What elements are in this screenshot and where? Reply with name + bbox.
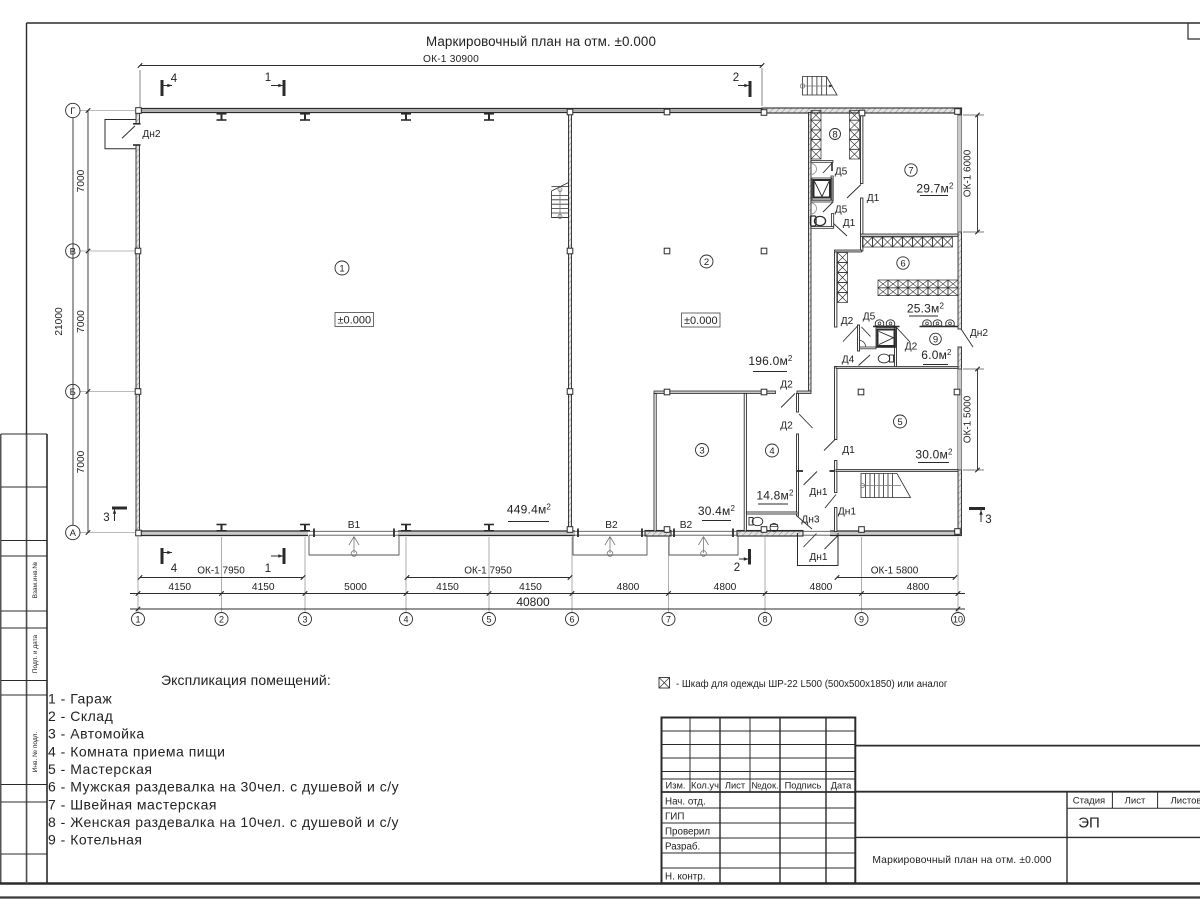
- svg-text:7000: 7000: [76, 450, 87, 473]
- svg-text:Листов: Листов: [1171, 795, 1200, 806]
- svg-text:- Шкаф для одежды ШР-22 L500 (: - Шкаф для одежды ШР-22 L500 (500х500х18…: [676, 679, 948, 690]
- svg-text:7: 7: [908, 165, 913, 176]
- svg-text:5: 5: [897, 417, 902, 428]
- svg-text:Г: Г: [70, 106, 75, 117]
- svg-text:9: 9: [859, 614, 864, 624]
- svg-text:Д5: Д5: [835, 205, 848, 216]
- svg-text:1 - Гараж: 1 - Гараж: [48, 690, 112, 706]
- svg-text:Подп. и дата: Подп. и дата: [32, 634, 39, 673]
- svg-text:30.0м2: 30.0м2: [915, 448, 953, 462]
- svg-text:Д5: Д5: [863, 312, 876, 323]
- svg-text:Д1: Д1: [843, 218, 856, 229]
- svg-text:ОК-1 7950: ОК-1 7950: [464, 566, 512, 577]
- svg-text:2 - Склад: 2 - Склад: [48, 708, 113, 724]
- svg-text:ОК-1 7950: ОК-1 7950: [197, 566, 245, 577]
- svg-text:ГИП: ГИП: [665, 812, 684, 823]
- svg-text:5000: 5000: [344, 582, 367, 593]
- svg-text:7000: 7000: [76, 169, 87, 192]
- svg-text:8: 8: [832, 129, 837, 140]
- svg-text:В2: В2: [680, 520, 693, 531]
- svg-text:1: 1: [339, 263, 344, 274]
- svg-text:№док.: №док.: [751, 781, 778, 791]
- svg-text:±0.000: ±0.000: [684, 315, 718, 327]
- svg-text:Изм.: Изм.: [666, 781, 686, 791]
- svg-text:ОК-1 5800: ОК-1 5800: [871, 566, 919, 577]
- svg-text:Д4: Д4: [842, 355, 855, 366]
- svg-text:6: 6: [569, 614, 574, 624]
- svg-text:Взам.инв.№: Взам.инв.№: [32, 562, 39, 599]
- svg-text:Дн2: Дн2: [142, 129, 161, 140]
- svg-text:Дн2: Дн2: [970, 328, 989, 339]
- svg-text:Подпись: Подпись: [785, 781, 822, 791]
- svg-text:1: 1: [265, 563, 271, 575]
- svg-text:5: 5: [486, 614, 491, 624]
- svg-text:7: 7: [666, 614, 671, 624]
- svg-text:4150: 4150: [519, 582, 542, 593]
- svg-text:Д5: Д5: [835, 167, 848, 178]
- svg-text:Лист: Лист: [725, 781, 746, 791]
- svg-text:Инв. № подл.: Инв. № подл.: [32, 732, 39, 773]
- svg-text:Д2: Д2: [780, 380, 793, 391]
- svg-text:Кол.уч: Кол.уч: [691, 781, 719, 791]
- svg-text:21000: 21000: [54, 307, 65, 336]
- svg-text:1: 1: [265, 72, 271, 84]
- svg-text:4: 4: [403, 614, 408, 624]
- svg-text:196.0м2: 196.0м2: [748, 354, 792, 368]
- svg-text:4: 4: [769, 446, 774, 457]
- svg-text:Н. контр.: Н. контр.: [665, 872, 705, 883]
- svg-text:2: 2: [733, 72, 739, 84]
- svg-text:±0.000: ±0.000: [338, 315, 372, 327]
- svg-text:Дн1: Дн1: [809, 487, 828, 498]
- svg-text:2: 2: [704, 257, 709, 268]
- svg-text:Д2: Д2: [841, 316, 854, 327]
- svg-text:9 - Котельная: 9 - Котельная: [48, 832, 143, 848]
- svg-text:7 - Швейная мастерская: 7 - Швейная мастерская: [48, 796, 217, 812]
- svg-text:ОК-1 30900: ОК-1 30900: [423, 54, 479, 65]
- svg-text:449.4м2: 449.4м2: [507, 503, 551, 517]
- svg-text:29.7м2: 29.7м2: [916, 182, 954, 196]
- svg-text:Нач. отд.: Нач. отд.: [665, 797, 706, 808]
- svg-text:5 - Мастерская: 5 - Мастерская: [48, 761, 152, 777]
- svg-text:4150: 4150: [252, 582, 275, 593]
- svg-text:9: 9: [933, 334, 938, 345]
- svg-text:ОК-1 5000: ОК-1 5000: [963, 395, 974, 443]
- svg-text:8 - Женская раздевалка на 10че: 8 - Женская раздевалка на 10чел. с душев…: [48, 814, 399, 830]
- svg-text:Маркировочный план на отм. ±0.: Маркировочный план на отм. ±0.000: [872, 855, 1051, 866]
- svg-text:Проверил: Проверил: [665, 827, 710, 838]
- svg-text:3: 3: [699, 445, 704, 456]
- svg-text:Экспликация помещений:: Экспликация помещений:: [161, 672, 331, 688]
- svg-text:В1: В1: [348, 520, 361, 531]
- svg-text:А: А: [70, 528, 77, 539]
- svg-text:Маркировочный план на отм. ±0.: Маркировочный план на отм. ±0.000: [426, 34, 656, 49]
- svg-text:4: 4: [171, 563, 178, 575]
- svg-text:2: 2: [219, 614, 224, 624]
- svg-text:Д1: Д1: [842, 445, 855, 456]
- svg-text:40800: 40800: [516, 595, 550, 609]
- svg-text:3: 3: [302, 614, 307, 624]
- svg-text:Д2: Д2: [905, 342, 918, 353]
- svg-text:25.3м2: 25.3м2: [907, 302, 945, 316]
- svg-text:4: 4: [171, 73, 178, 85]
- svg-text:Д2: Д2: [780, 421, 793, 432]
- svg-text:10: 10: [953, 614, 963, 624]
- svg-text:Дата: Дата: [831, 781, 852, 791]
- svg-text:4150: 4150: [436, 582, 459, 593]
- svg-text:4800: 4800: [907, 582, 930, 593]
- svg-text:4150: 4150: [168, 582, 191, 593]
- svg-text:Стадия: Стадия: [1073, 795, 1105, 806]
- svg-text:3: 3: [985, 514, 991, 526]
- svg-text:Д1: Д1: [867, 193, 880, 204]
- svg-text:Дн3: Дн3: [801, 515, 820, 526]
- svg-text:1: 1: [135, 614, 140, 624]
- svg-text:7000: 7000: [76, 310, 87, 333]
- svg-text:4 - Комната приема пищи: 4 - Комната приема пищи: [48, 743, 225, 759]
- svg-text:ОК-1 6000: ОК-1 6000: [963, 149, 974, 197]
- svg-text:Дн1: Дн1: [838, 507, 857, 518]
- svg-text:4800: 4800: [714, 582, 737, 593]
- svg-text:30.4м2: 30.4м2: [698, 504, 736, 518]
- svg-text:Разраб.: Разраб.: [665, 842, 700, 853]
- svg-text:6: 6: [900, 258, 905, 269]
- svg-text:Дн1: Дн1: [809, 552, 828, 563]
- svg-text:2: 2: [734, 562, 740, 574]
- svg-text:3 - Автомойка: 3 - Автомойка: [48, 726, 145, 742]
- svg-text:4800: 4800: [810, 582, 833, 593]
- svg-text:В2: В2: [605, 520, 618, 531]
- svg-text:Лист: Лист: [1125, 795, 1146, 806]
- svg-text:8: 8: [762, 614, 767, 624]
- svg-text:ЭП: ЭП: [1078, 815, 1100, 832]
- svg-text:3: 3: [103, 512, 109, 524]
- svg-text:14.8м2: 14.8м2: [756, 489, 794, 503]
- svg-text:6.0м2: 6.0м2: [921, 348, 952, 362]
- svg-text:6 - Мужская раздевалка на 30че: 6 - Мужская раздевалка на 30чел. с душев…: [48, 779, 399, 795]
- svg-text:4800: 4800: [617, 582, 640, 593]
